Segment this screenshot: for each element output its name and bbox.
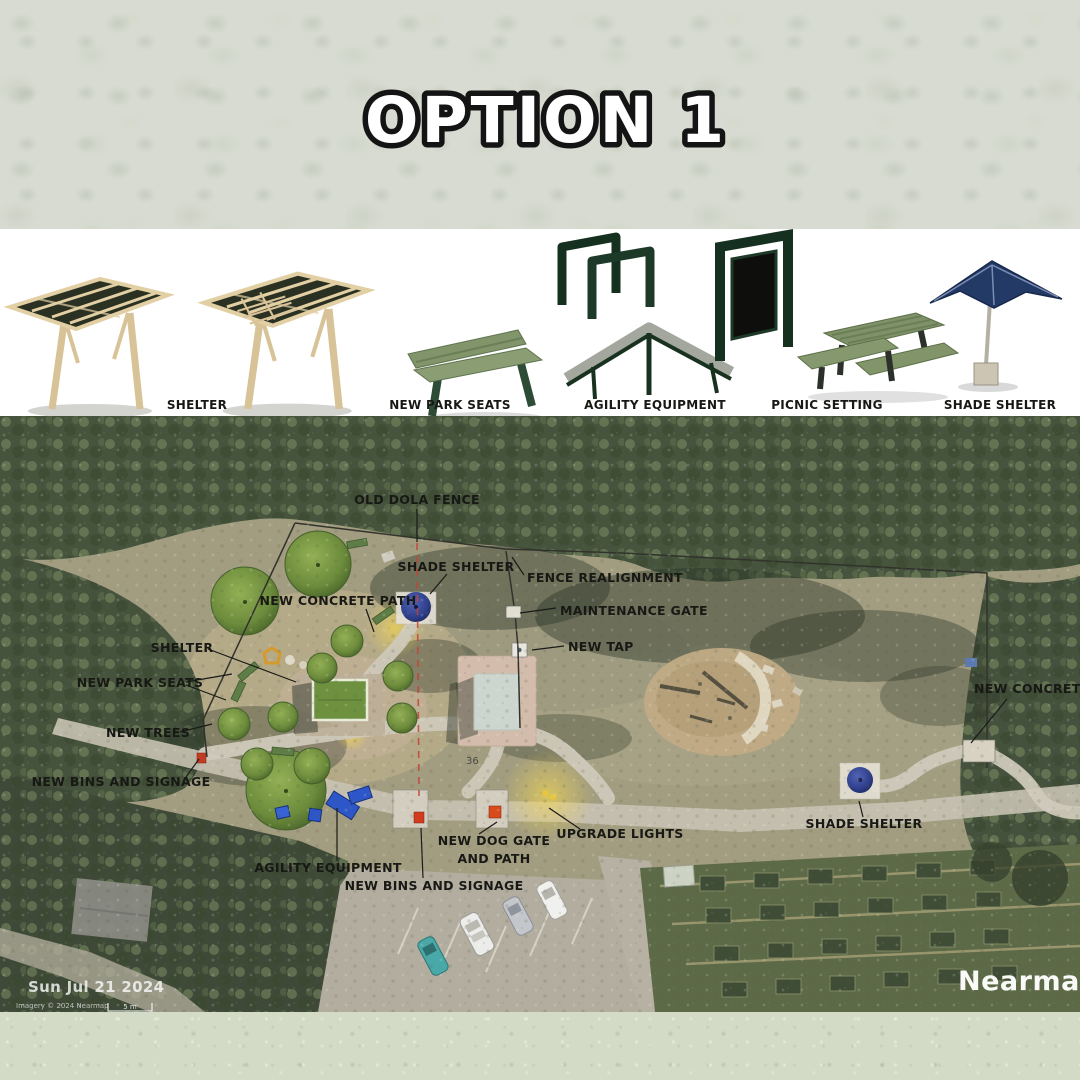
- title-band: OPTION 1: [0, 70, 1080, 180]
- map-label-new-trees: NEW TREES: [106, 725, 190, 740]
- legend-strip: SHELTER NEW PARK SEATS AGILITY EQUIPMENT…: [0, 229, 1080, 416]
- map-label-new-tap: NEW TAP: [568, 639, 634, 654]
- legend-label-shelter: SHELTER: [167, 398, 227, 412]
- map-label-fence-realignment: FENCE REALIGNMENT: [527, 570, 683, 585]
- legend-agility-aframe-art: [567, 329, 731, 399]
- legend-label-shade-shelter: SHADE SHELTER: [944, 398, 1056, 412]
- lot-number-label: 36: [466, 756, 479, 767]
- legend-agility-frame-art: [720, 235, 788, 361]
- map-label-new-dog-gate-1: NEW DOG GATE: [438, 833, 550, 848]
- map-label-shelter: SHELTER: [151, 640, 214, 655]
- scale-bar-label: 5 m: [123, 1003, 137, 1011]
- legend-agility-hurdles-art: [562, 237, 650, 319]
- map-label-new-dog-gate-2: AND PATH: [458, 851, 531, 866]
- nearmap-logo: Nearmap: [958, 966, 1080, 997]
- map-label-new-bins-bottom: NEW BINS AND SIGNAGE: [345, 878, 524, 893]
- page-title: OPTION 1: [365, 84, 727, 157]
- map-label-maintenance-gate: MAINTENANCE GATE: [560, 603, 708, 618]
- map-label-upgrade-lights: UPGRADE LIGHTS: [556, 826, 683, 841]
- map-label-old-dola-fence: OLD DOLA FENCE: [354, 492, 480, 507]
- legend-shelter-2-art: [204, 274, 368, 416]
- map-label-new-park-seats: NEW PARK SEATS: [77, 675, 203, 690]
- imagery-date: Sun Jul 21 2024: [28, 978, 164, 996]
- map-label-new-concrete-path-right: NEW CONCRETE PATH: [974, 681, 1080, 696]
- imagery-credit: Imagery © 2024 Nearmap: [16, 1002, 109, 1010]
- map-label-shade-shelter-right: SHADE SHELTER: [806, 816, 923, 831]
- legend-label-picnic-setting: PICNIC SETTING: [771, 398, 883, 412]
- legend-picnic-art: [798, 313, 958, 403]
- option-poster: { "title": "OPTION 1", "legend": { "item…: [0, 0, 1080, 1080]
- title-art: OPTION 1: [0, 70, 1080, 180]
- map-label-agility-equipment: AGILITY EQUIPMENT: [254, 860, 401, 875]
- map-label-shade-shelter-top: SHADE SHELTER: [398, 559, 515, 574]
- site-plan-map: OLD DOLA FENCE SHADE SHELTER FENCE REALI…: [0, 416, 1080, 1012]
- grain-overlay: [0, 416, 1080, 1012]
- legend-umbrella-art: [930, 261, 1062, 392]
- map-label-new-concrete-path-left: NEW CONCRETE PATH: [260, 593, 417, 608]
- legend-shelter-1-art: [10, 279, 168, 416]
- bottom-grass-band: [0, 1012, 1080, 1080]
- map-label-new-bins-left: NEW BINS AND SIGNAGE: [32, 774, 211, 789]
- legend-label-agility-equipment: AGILITY EQUIPMENT: [584, 398, 726, 412]
- legend-label-new-park-seats: NEW PARK SEATS: [389, 398, 511, 412]
